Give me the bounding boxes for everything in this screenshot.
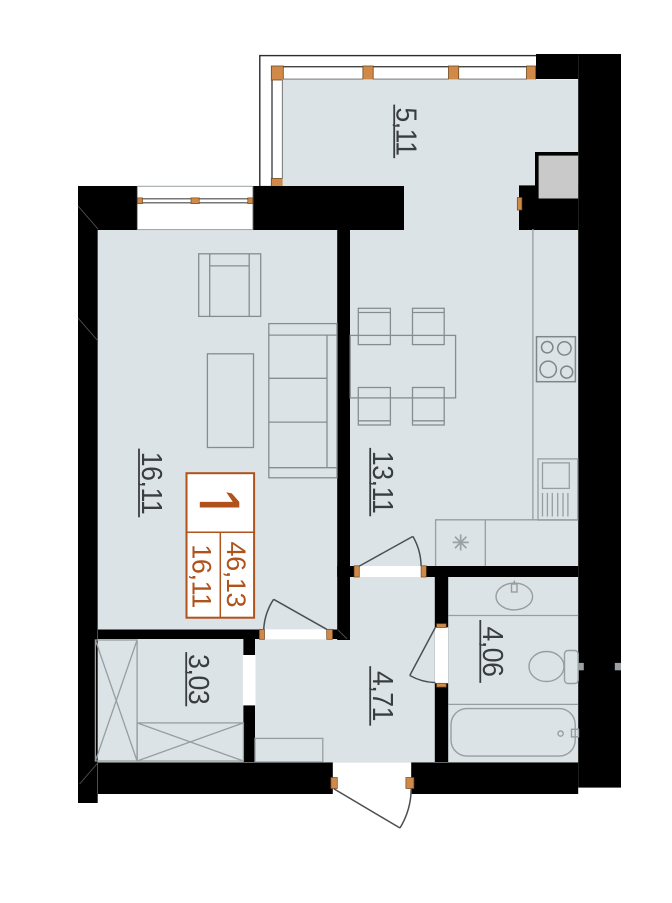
svg-text:3,03: 3,03 — [183, 654, 215, 704]
svg-text:16,11: 16,11 — [186, 544, 216, 608]
svg-text:46,13: 46,13 — [221, 542, 251, 608]
svg-text:4,71: 4,71 — [367, 671, 399, 721]
svg-text:16,11: 16,11 — [136, 452, 168, 514]
svg-text:13,11: 13,11 — [367, 451, 399, 513]
svg-text:4,06: 4,06 — [477, 626, 509, 676]
